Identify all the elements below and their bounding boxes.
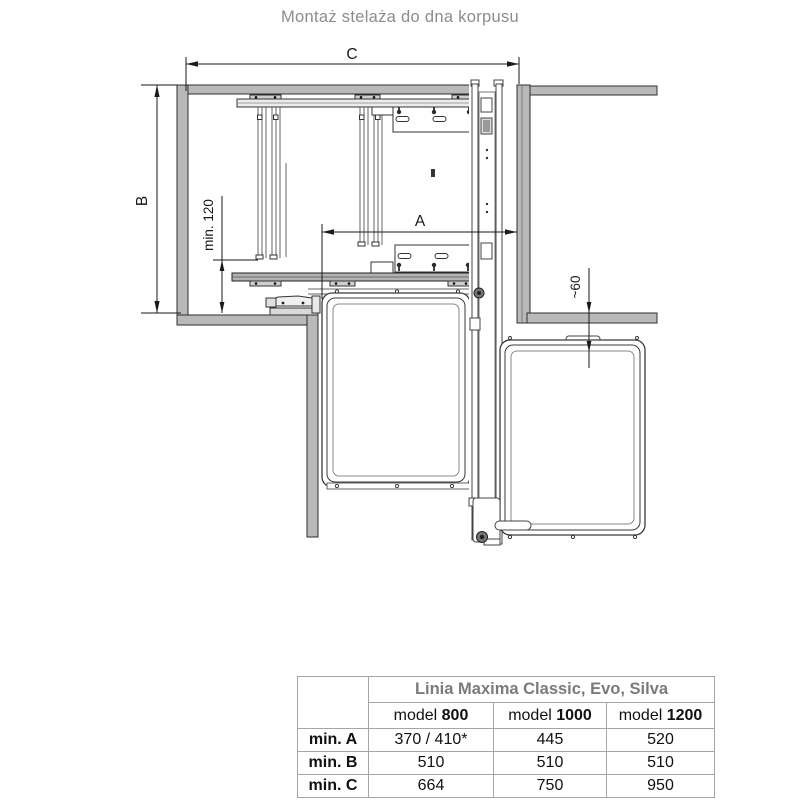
row-label: min. A: [298, 729, 369, 752]
model-number: 1000: [556, 707, 592, 724]
dim-label-a: A: [415, 213, 426, 230]
table-cell: 510: [369, 752, 494, 775]
assembly-diagram: C B min. 120 A ~60: [0, 0, 800, 665]
bottom-wall-right: [527, 313, 657, 323]
table-cell: 510: [607, 752, 715, 775]
arrow-up: [154, 85, 159, 97]
arrow-down: [154, 301, 159, 313]
table-cell: 950: [607, 775, 715, 798]
model-prefix: model: [508, 707, 556, 724]
dim-label-60: ~60: [568, 276, 583, 299]
model-prefix: model: [394, 707, 442, 724]
model-1200-header: model 1200: [607, 703, 715, 729]
table-cell: 750: [494, 775, 607, 798]
dim-label-min120: min. 120: [201, 199, 216, 251]
top-wall-left: [177, 85, 470, 94]
product-line-header: Linia Maxima Classic, Evo, Silva: [369, 677, 715, 703]
pullout-frame: [232, 95, 478, 294]
table-cell: 370 / 410*: [369, 729, 494, 752]
top-wall-right: [530, 86, 657, 95]
row-label: min. C: [298, 775, 369, 798]
table-row-min-b: min. B 510 510 510: [298, 752, 715, 775]
left-basket: [322, 290, 473, 489]
mechanism-column: [469, 80, 504, 544]
slide-arm: [495, 521, 531, 530]
model-number: 800: [442, 707, 469, 724]
arrow-left: [186, 61, 198, 66]
model-prefix: model: [619, 707, 667, 724]
partition-wall: [517, 85, 530, 323]
model-800-header: model 800: [369, 703, 494, 729]
table-group-header-row: Linia Maxima Classic, Evo, Silva: [298, 677, 715, 703]
model-1000-header: model 1000: [494, 703, 607, 729]
table-row-min-c: min. C 664 750 950: [298, 775, 715, 798]
arrow-up: [220, 260, 225, 271]
table-cell: 445: [494, 729, 607, 752]
left-wall: [177, 85, 188, 325]
bottom-wall-left: [177, 315, 308, 325]
row-label: min. B: [298, 752, 369, 775]
arrow-down: [220, 302, 225, 313]
table-row-min-a: min. A 370 / 410* 445 520: [298, 729, 715, 752]
door-panel: [307, 313, 318, 537]
dim-label-c: C: [346, 46, 357, 63]
dimension-min120: min. 120: [201, 196, 258, 313]
upper-mounting-plate: [372, 107, 477, 132]
frame-leg-middle: [360, 107, 382, 245]
model-number: 1200: [667, 707, 703, 724]
dim-label-b: B: [134, 196, 151, 206]
arrow-right: [505, 229, 517, 234]
arrow-down-wall: [587, 302, 592, 313]
table-cell: 510: [494, 752, 607, 775]
right-basket: [500, 336, 645, 539]
dimensions-table: Linia Maxima Classic, Evo, Silva model 8…: [297, 676, 715, 798]
lower-mounting-plate: [371, 245, 472, 273]
frame-leg-left: [258, 107, 280, 258]
table-cell: 520: [607, 729, 715, 752]
table-corner-cell: [298, 677, 369, 729]
bottom-rail-tabs: [250, 281, 470, 286]
door-hinge: [266, 296, 320, 315]
arrow-right: [507, 61, 519, 66]
dimension-b: B: [134, 85, 181, 313]
table-cell: 664: [369, 775, 494, 798]
arrow-left: [322, 229, 334, 234]
